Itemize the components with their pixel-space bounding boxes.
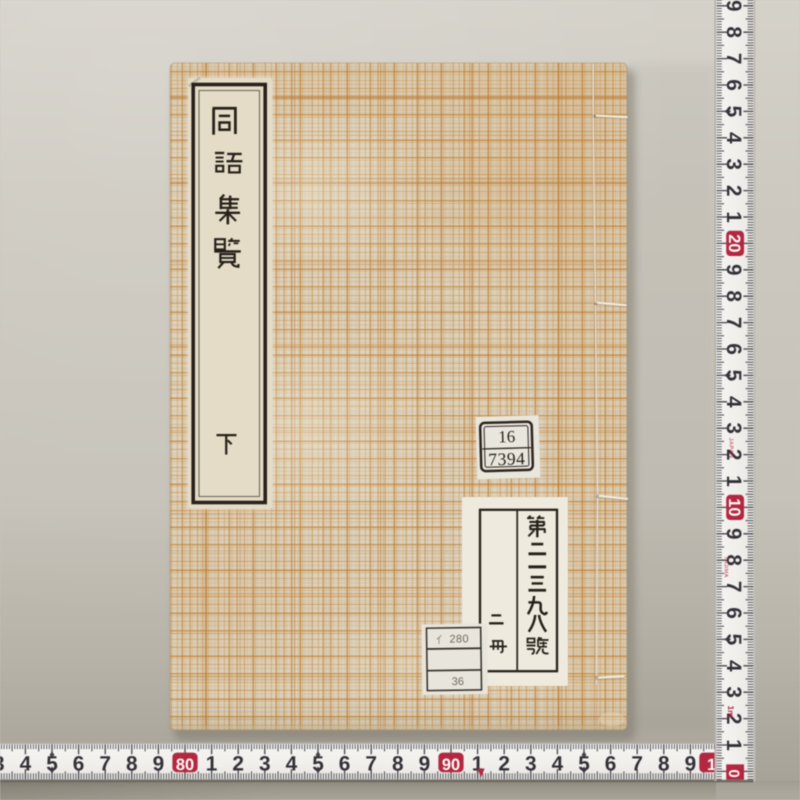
svg-text:3: 3	[259, 753, 271, 776]
svg-text:4: 4	[722, 132, 745, 144]
svg-text:9: 9	[722, 0, 745, 12]
svg-text:3: 3	[722, 422, 745, 434]
svg-text:10: 10	[725, 498, 743, 516]
svg-text:7: 7	[722, 581, 745, 593]
svg-text:20: 20	[725, 234, 743, 252]
svg-text:6: 6	[339, 753, 351, 776]
svg-text:80: 80	[176, 756, 194, 774]
svg-text:5: 5	[578, 753, 590, 776]
svg-text:6: 6	[605, 753, 617, 776]
svg-text:5: 5	[312, 753, 324, 776]
svg-text:8: 8	[658, 753, 670, 776]
svg-text:7: 7	[365, 753, 377, 776]
svg-text:JAPAN: JAPAN	[727, 438, 733, 459]
svg-text:7: 7	[631, 753, 643, 776]
svg-text:8: 8	[126, 753, 138, 776]
svg-text:8: 8	[722, 290, 745, 302]
svg-text:5: 5	[722, 634, 745, 646]
svg-text:2: 2	[722, 185, 745, 197]
svg-text:1: 1	[722, 211, 745, 223]
svg-text:9: 9	[685, 753, 697, 776]
svg-text:5: 5	[722, 370, 745, 382]
svg-text:7: 7	[99, 753, 111, 776]
svg-text:1: 1	[722, 739, 745, 751]
svg-text:1: 1	[206, 753, 218, 776]
svg-text:280: 280	[449, 633, 469, 645]
svg-text:16: 16	[498, 427, 516, 446]
svg-text:6: 6	[73, 753, 85, 776]
svg-text:4: 4	[722, 396, 745, 408]
svg-text:9: 9	[722, 264, 745, 276]
svg-text:3: 3	[722, 158, 745, 170]
svg-text:9: 9	[419, 753, 431, 776]
svg-text:8: 8	[392, 753, 404, 776]
svg-text:6: 6	[722, 607, 745, 619]
svg-text:90: 90	[442, 756, 460, 774]
svg-text:7: 7	[722, 53, 745, 65]
svg-text:9: 9	[722, 528, 745, 540]
svg-text:2: 2	[498, 753, 510, 776]
svg-text:3: 3	[722, 686, 745, 698]
svg-text:1m: 1m	[726, 705, 736, 717]
svg-text:8: 8	[722, 26, 745, 38]
svg-text:3: 3	[525, 753, 537, 776]
svg-text:6: 6	[722, 343, 745, 355]
svg-text:TAJIMA: TAJIMA	[723, 556, 729, 577]
svg-text:4: 4	[722, 660, 745, 672]
svg-text:7: 7	[722, 317, 745, 329]
svg-text:4: 4	[20, 753, 32, 776]
svg-text:2: 2	[232, 753, 244, 776]
svg-text:36: 36	[452, 676, 464, 688]
svg-text:0: 0	[725, 769, 742, 777]
svg-text:4: 4	[552, 753, 564, 776]
svg-text:7394: 7394	[488, 448, 526, 469]
svg-text:3: 3	[0, 753, 5, 776]
svg-text:6: 6	[722, 79, 745, 91]
svg-text:5: 5	[722, 106, 745, 118]
svg-text:5: 5	[46, 753, 58, 776]
svg-text:9: 9	[153, 753, 165, 776]
svg-text:1: 1	[722, 475, 745, 487]
svg-text:4: 4	[286, 753, 298, 776]
